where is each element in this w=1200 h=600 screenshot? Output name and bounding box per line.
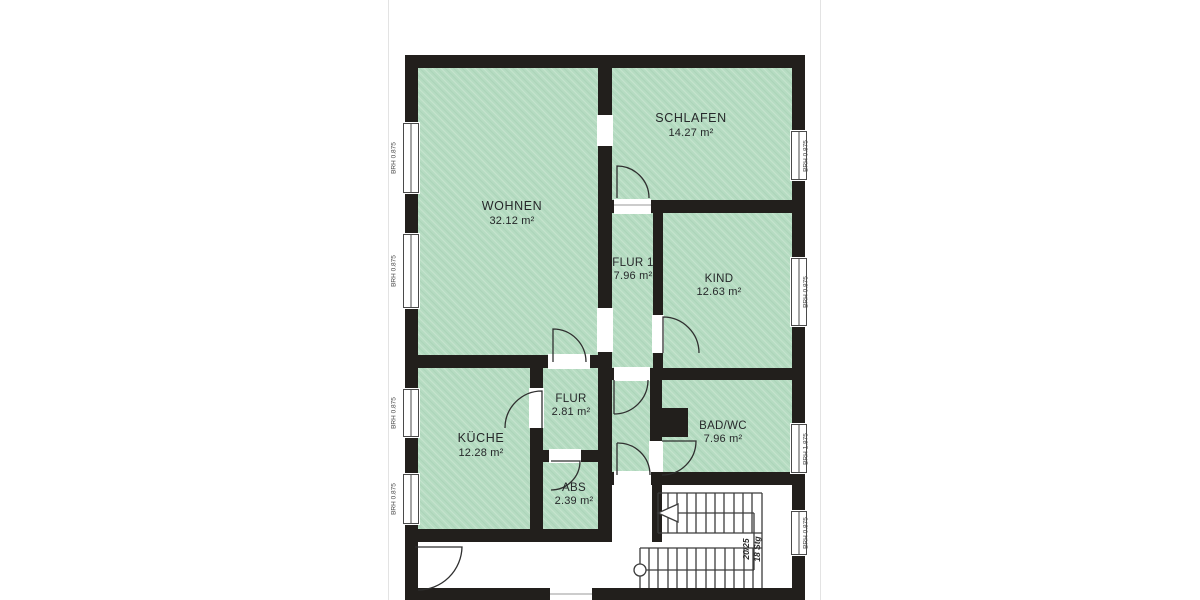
- room-area: 7.96 m²: [699, 433, 747, 447]
- room-hall: [612, 380, 650, 472]
- room-name: KÜCHE: [458, 431, 505, 447]
- room-label-abs: ABS 2.39 m²: [555, 481, 594, 509]
- window-label-right-2: BRH 0.875: [803, 276, 810, 308]
- room-name: KIND: [696, 272, 741, 286]
- wall-center-lower: [598, 368, 612, 542]
- window-label-right-4: BRH 0.875: [803, 517, 810, 549]
- room-area: 2.81 m²: [552, 406, 591, 420]
- floor-plan-drawing: [0, 0, 1200, 600]
- room-name: FLUR: [552, 392, 591, 406]
- window-label-left-2: BRH 0.875: [391, 255, 398, 287]
- window-label-right-3: BRH 1.875: [803, 433, 810, 465]
- window-label-right-1: BRH 0.875: [803, 140, 810, 172]
- room-label-flur: FLUR 2.81 m²: [552, 392, 591, 420]
- staircase-steps: 18 Stg: [752, 536, 763, 562]
- room-area: 32.12 m²: [482, 215, 543, 229]
- window-label-left-3: BRH 0.875: [391, 397, 398, 429]
- room-area: 12.28 m²: [458, 447, 505, 461]
- stair-walk-line-start: [634, 564, 646, 576]
- floor-plan-page: WOHNEN 32.12 m² SCHLAFEN 14.27 m² FLUR 1…: [0, 0, 1200, 600]
- room-label-kueche: KÜCHE 12.28 m²: [458, 431, 505, 460]
- room-name: SCHLAFEN: [655, 111, 726, 127]
- window: [402, 473, 420, 525]
- window: [402, 122, 420, 194]
- window: [402, 233, 420, 309]
- wall-bottom: [405, 588, 805, 600]
- wall-kitchen-bottom: [405, 529, 608, 542]
- room-label-flur1: FLUR 1 7.96 m²: [612, 256, 653, 284]
- window-label-left-1: BRH 0.875: [391, 142, 398, 174]
- room-label-wohnen: WOHNEN 32.12 m²: [482, 199, 543, 228]
- room-label-schlafen: SCHLAFEN 14.27 m²: [655, 111, 726, 140]
- room-name: BAD/WC: [699, 419, 747, 433]
- room-area: 7.96 m²: [612, 270, 653, 284]
- room-name: WOHNEN: [482, 199, 543, 215]
- room-area: 2.39 m²: [555, 495, 594, 509]
- staircase-label: 20/25 18 Stg: [741, 536, 763, 562]
- door-entrance: [415, 547, 462, 590]
- room-label-kind: KIND 12.63 m²: [696, 272, 741, 300]
- window-label-left-4: BRH 0.875: [391, 483, 398, 515]
- room-name: FLUR 1: [612, 256, 653, 270]
- room-area: 14.27 m²: [655, 127, 726, 141]
- staircase-rise-run: 20/25: [741, 536, 752, 562]
- room-name: ABS: [555, 481, 594, 495]
- window: [402, 388, 420, 438]
- room-label-badwc: BAD/WC 7.96 m²: [699, 419, 747, 447]
- shaft: [658, 408, 688, 437]
- room-area: 12.63 m²: [696, 286, 741, 300]
- room-flur1: [612, 213, 653, 368]
